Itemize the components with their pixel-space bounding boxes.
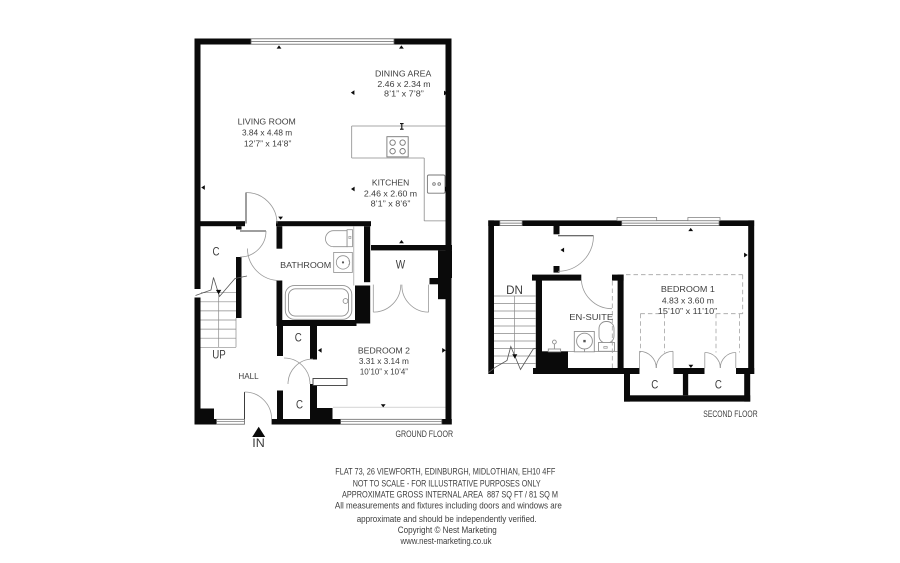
svg-text:10’10” x 10’4”: 10’10” x 10’4”	[360, 367, 408, 376]
svg-text:IN: IN	[252, 436, 265, 450]
svg-text:FLAT 73, 26 VIEWFORTH, EDINBUR: FLAT 73, 26 VIEWFORTH, EDINBURGH, MIDLOT…	[335, 465, 555, 476]
svg-text:HALL: HALL	[238, 372, 259, 381]
svg-text:NOT TO SCALE - FOR ILLUSTRATIV: NOT TO SCALE - FOR ILLUSTRATIVE PURPOSES…	[353, 478, 542, 489]
svg-text:approximate and should be inde: approximate and should be independently …	[357, 513, 537, 524]
svg-text:LIVING ROOM: LIVING ROOM	[238, 117, 297, 126]
svg-text:C: C	[296, 397, 303, 411]
svg-text:8’1” x 7’8”: 8’1” x 7’8”	[384, 90, 424, 99]
svg-text:BEDROOM 1: BEDROOM 1	[661, 285, 716, 294]
svg-text:Copyright © Nest Marketing: Copyright © Nest Marketing	[398, 524, 497, 535]
svg-text:2.46 x 2.34 m: 2.46 x 2.34 m	[377, 80, 431, 89]
svg-text:15’10” x 11’10”: 15’10” x 11’10”	[658, 307, 718, 316]
svg-text:3.31 x 3.14 m: 3.31 x 3.14 m	[359, 357, 409, 366]
svg-text:C: C	[715, 378, 722, 392]
svg-text:C: C	[213, 245, 220, 259]
svg-text:4.83 x 3.60 m: 4.83 x 3.60 m	[662, 296, 714, 305]
svg-text:C: C	[295, 331, 302, 345]
svg-text:12’7” x 14’8”: 12’7” x 14’8”	[244, 140, 292, 149]
svg-text:3.84 x 4.48 m: 3.84 x 4.48 m	[242, 129, 293, 138]
svg-text:UP: UP	[212, 348, 226, 362]
svg-text:BATHROOM: BATHROOM	[280, 261, 331, 270]
svg-text:2.46 x 2.60 m: 2.46 x 2.60 m	[364, 189, 418, 198]
svg-text:DN: DN	[506, 283, 523, 297]
svg-text:All measurements and fixtures: All measurements and fixtures including …	[335, 500, 562, 511]
svg-text:GROUND FLOOR: GROUND FLOOR	[396, 429, 454, 439]
svg-text:C: C	[651, 378, 658, 392]
svg-text:www.nest-marketing.co.uk: www.nest-marketing.co.uk	[400, 535, 492, 546]
svg-text:EN-SUITE: EN-SUITE	[569, 313, 613, 322]
svg-text:SECOND FLOOR: SECOND FLOOR	[703, 409, 758, 419]
svg-text:8’1” x 8’6”: 8’1” x 8’6”	[371, 199, 411, 208]
svg-text:W: W	[396, 257, 406, 271]
svg-text:BEDROOM 2: BEDROOM 2	[358, 347, 411, 356]
svg-text:DINING AREA: DINING AREA	[375, 69, 432, 78]
svg-text:APPROXIMATE GROSS INTERNAL ARE: APPROXIMATE GROSS INTERNAL AREA 887 SQ F…	[342, 489, 558, 500]
svg-text:KITCHEN: KITCHEN	[372, 179, 410, 188]
